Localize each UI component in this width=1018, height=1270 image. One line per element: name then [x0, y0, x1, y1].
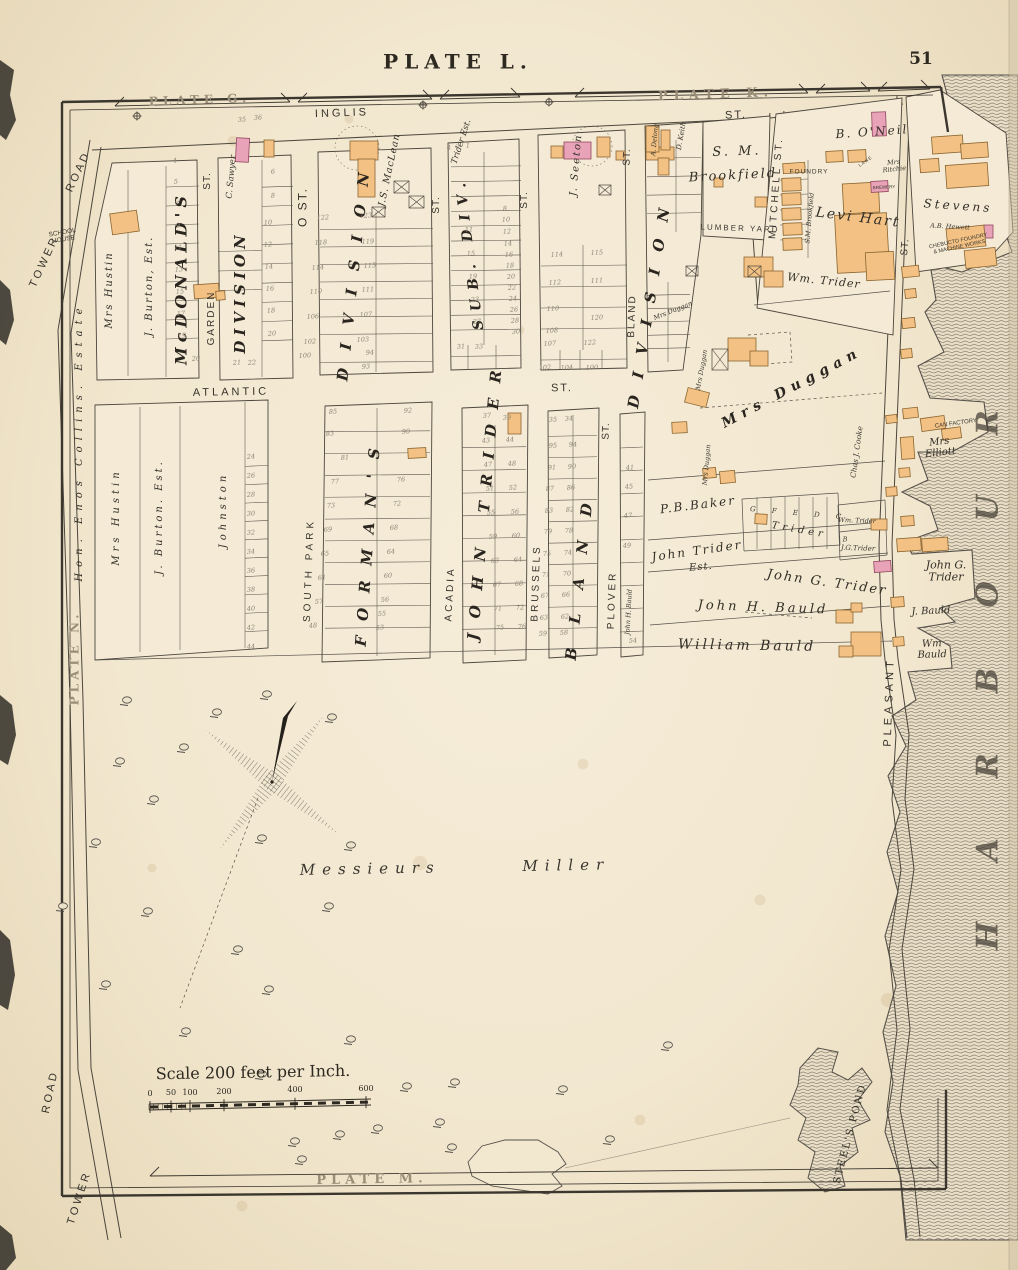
- plate-ref-k: PLATE K.: [658, 86, 775, 104]
- john-h-bauld: John H. Bauld: [697, 599, 828, 617]
- plate-ref-n: PLATE N.: [69, 611, 82, 706]
- parcel-number: 16: [505, 251, 514, 258]
- parcel-number: 42: [247, 624, 256, 631]
- parcel-number: 104: [561, 364, 574, 372]
- parcel-number: 51: [486, 485, 495, 492]
- parcel-number: 18: [267, 307, 276, 314]
- parcel-number: 53: [376, 624, 385, 631]
- scale-tick-200: 200: [216, 1088, 231, 1096]
- parcel-number: 41: [626, 464, 635, 471]
- garden-street-st: ST.: [203, 172, 214, 189]
- parcel-number: 95: [549, 442, 558, 449]
- sm-brookfield-2: Brookfield: [688, 167, 777, 185]
- c-sawyer: C. Sawyer: [226, 155, 239, 199]
- parcel-number: 8: [503, 205, 508, 212]
- parcel-number: 74: [564, 549, 573, 556]
- south-park-street: SOUTH PARK: [303, 518, 317, 623]
- parcel-number: 114: [312, 264, 325, 272]
- parcel-number: 102: [539, 364, 552, 372]
- parcel-number: 7: [175, 200, 180, 207]
- parcel-number: 63: [491, 557, 500, 564]
- steels-pond: STEEL'S POND: [833, 1083, 870, 1185]
- parcel-number: 39: [503, 414, 512, 421]
- parcel-number: 15: [467, 250, 476, 257]
- parcel-number: 22: [508, 284, 517, 291]
- parcel-number: 82: [566, 506, 575, 513]
- tower-road-upper-road: ROAD: [65, 150, 94, 195]
- st-label-1: ST.: [432, 196, 443, 213]
- parcel-number: 32: [247, 529, 256, 536]
- parcel-number: 75: [496, 624, 505, 631]
- parcel-number: 40: [247, 605, 256, 612]
- parcel-number: 24: [509, 295, 518, 302]
- parcel-number: 75: [543, 550, 552, 557]
- parcel-number: 61: [318, 574, 327, 581]
- parcel-number: 12: [264, 241, 273, 248]
- parcel-number: 30: [247, 510, 256, 517]
- parcel-number: 93: [362, 363, 371, 370]
- parcel-number: 107: [360, 311, 373, 319]
- parcel-number: 23: [471, 296, 480, 303]
- scale-caption: Scale 200 feet per Inch.: [156, 1063, 351, 1083]
- parcel-number: 37: [483, 412, 492, 419]
- parcel-number: 85: [329, 408, 338, 415]
- parcel-number: 120: [591, 314, 604, 322]
- parcel-number: 20: [507, 273, 516, 280]
- plate-ref-m: PLATE M.: [316, 1172, 428, 1188]
- parcel-number: 48: [309, 622, 318, 629]
- brewery: BREWERY: [873, 185, 896, 191]
- parcel-number: 48: [508, 460, 517, 467]
- inglis-street: INGLIS: [315, 107, 369, 120]
- parcel-number: 64: [387, 548, 396, 555]
- parcel-number: 70: [563, 570, 572, 577]
- parcel-number: 4: [173, 157, 178, 164]
- parcel-number: 60: [512, 532, 521, 539]
- parcel-number: 6: [271, 168, 276, 175]
- parcel-number: 90: [402, 428, 411, 435]
- parcel-number: 16: [266, 285, 275, 292]
- parcel-number: 31: [457, 343, 466, 350]
- parcel-number: 19: [178, 332, 187, 339]
- john-trider-division: JOHN TRIDER: [466, 355, 507, 641]
- parcel-number: 122: [317, 214, 330, 222]
- tower-road-lower-tower: TOWER: [66, 1170, 94, 1227]
- pleasant-street: PLEASANT: [883, 657, 898, 747]
- parcel-number: 94: [366, 349, 375, 356]
- parcel-number: 106: [307, 313, 320, 321]
- st-label-2: ST.: [520, 191, 531, 208]
- parcel-number: 10: [264, 219, 273, 226]
- parcel-number: 111: [591, 277, 604, 285]
- parcel-number: 64: [514, 556, 523, 563]
- parcel-number: 71: [494, 605, 503, 612]
- parcel-number: 44: [506, 436, 515, 443]
- parcel-number: 79: [544, 528, 553, 535]
- wm-trider-north: Wm. Trider: [787, 271, 861, 290]
- b-oneil: B. O'Neil: [835, 123, 909, 141]
- parcel-number: 55: [487, 509, 496, 516]
- o-street: O ST.: [297, 187, 310, 227]
- johnston: Johnston: [219, 472, 230, 549]
- bland-street-st: ST.: [622, 148, 633, 166]
- b-parcel: B: [843, 537, 848, 544]
- acadia-street: ACADIA: [444, 566, 457, 622]
- enos-collins-estate: Hon. Enos Collins. Estate: [75, 302, 86, 581]
- jg-trider-parcel: J.G.Trider: [841, 545, 876, 554]
- parcel-number: 55: [378, 610, 387, 617]
- william-bauld: William Bauld: [678, 637, 816, 654]
- mrs-duggan-v1: Mrs Duggan: [695, 349, 709, 391]
- parcel-number: 60: [384, 572, 393, 579]
- plover-street-st: ST.: [601, 422, 612, 440]
- parcel-number: 14: [265, 263, 274, 270]
- parcel-number: 8: [271, 192, 276, 199]
- sm-brookfield-1: S. M.: [712, 144, 762, 159]
- parcel-number: 112: [549, 279, 562, 287]
- parcel-number: 27: [473, 318, 482, 325]
- parcel-number: 2: [456, 143, 461, 150]
- inglis-street-st: ST.: [725, 110, 747, 122]
- trider-diagonal: Trider: [771, 521, 828, 541]
- scale-tick-50: 50: [166, 1089, 176, 1097]
- parcel-number: 33: [475, 343, 484, 350]
- parcel-number: 17: [177, 310, 186, 317]
- parcel-number: 115: [364, 262, 377, 270]
- parcel-number: 114: [551, 251, 564, 259]
- parcel-number: 67: [493, 581, 502, 588]
- parcel-number: 67: [541, 592, 550, 599]
- a-delong: A. Delong: [650, 124, 660, 157]
- d-keith: D. Keith: [676, 121, 688, 150]
- parcel-number: 76: [518, 623, 527, 630]
- parcel-number: 35: [238, 116, 247, 123]
- pleasant-street-st: ST.: [900, 238, 912, 256]
- parcel-number: 56: [381, 596, 390, 603]
- parcel-number: 91: [548, 464, 557, 471]
- parcel-number: 110: [547, 305, 560, 313]
- scale-tick-400: 400: [287, 1086, 302, 1094]
- parcel-number: 24: [247, 453, 256, 460]
- parcel-number: 26: [510, 306, 519, 313]
- school-house: SCHOOL HOUSE: [40, 226, 86, 247]
- parcel-number: 87: [546, 485, 555, 492]
- parcel-number: 68: [390, 524, 399, 531]
- parcel-number: 94: [569, 441, 578, 448]
- levi-hart: Levi Hart: [815, 206, 901, 231]
- parcel-number: 90: [568, 463, 577, 470]
- mrs-hustin-upper: Mrs Hustin: [105, 251, 116, 328]
- plover-street: PLOVER: [607, 571, 620, 630]
- j-seeton: J. Seeton: [569, 133, 585, 196]
- parcel-number: 108: [546, 327, 559, 335]
- map-labels-layer: PLATE L.51PLATE G.PLATE K.PLATE M.PLATE …: [0, 0, 1018, 1270]
- parcel-number: 119: [362, 238, 375, 246]
- scale-tick-100: 100: [182, 1089, 197, 1097]
- foundry: FOUNDRY: [789, 170, 828, 177]
- parcel-number: 14: [504, 240, 513, 247]
- js-maclean: J.S. MacLean: [377, 132, 402, 207]
- parcel-number: 77: [331, 478, 340, 485]
- mrs-duggan-large: Mrs Duggan: [719, 345, 864, 432]
- parcel-number: 44: [247, 643, 256, 650]
- parcel-number: 13: [175, 266, 184, 273]
- scale-tick-0: 0: [147, 1090, 152, 1098]
- mcdonalds-division-2: DIVISION: [233, 230, 249, 353]
- parcel-number: 36: [247, 567, 256, 574]
- mrs-elliott: Mrs Elliott: [917, 435, 963, 460]
- parcel-number: 47: [624, 512, 633, 519]
- garden-street: GARDEN: [207, 291, 218, 346]
- john-trider-est-2: Est.: [689, 562, 713, 575]
- stevens: Stevens: [923, 197, 993, 214]
- parcel-number: 71: [542, 571, 551, 578]
- parcel-number: 76: [397, 476, 406, 483]
- lane: LANE: [858, 156, 874, 169]
- parcel-number: 86: [567, 484, 576, 491]
- parcel-number: 118: [315, 239, 328, 247]
- parcel-number: 45: [625, 483, 634, 490]
- j-burton-upper: J. Burton, Est.: [145, 236, 156, 337]
- parcel-number: 10: [502, 216, 511, 223]
- parcel-number: 28: [511, 317, 520, 324]
- parcel-number: 18: [506, 262, 515, 269]
- parcel-number: 54: [629, 637, 638, 644]
- parcel-number: 111: [362, 286, 375, 294]
- lumber-yard: LUMBER YARD: [700, 223, 779, 234]
- parcel-number: 83: [545, 507, 554, 514]
- parcel-number: 56: [511, 508, 520, 515]
- parcel-number: 36: [254, 114, 263, 121]
- gfedc-letters: G F E D C: [750, 506, 849, 522]
- parcel-number: 1: [466, 142, 471, 149]
- parcel-number: 78: [565, 527, 574, 534]
- mrs-duggan-small: Mrs Duggan: [653, 300, 694, 322]
- j-bauld: J. Bauld: [911, 606, 950, 619]
- parcel-number: 52: [509, 484, 518, 491]
- john-g-trider: John G. Trider: [766, 568, 888, 598]
- parcel-number: 34: [247, 548, 256, 555]
- parcel-number: 58: [560, 629, 569, 636]
- plate-ref-g: PLATE G.: [149, 92, 252, 108]
- mrs-hustin-lower: Mrs Hustin: [112, 468, 123, 565]
- parcel-number: 123: [360, 212, 373, 220]
- parcel-number: 66: [562, 591, 571, 598]
- parcel-number: 11: [174, 244, 183, 251]
- parcel-number: 15: [176, 288, 185, 295]
- parcel-number: 12: [503, 228, 512, 235]
- parcel-number: 122: [584, 339, 597, 347]
- mrs-duggan-v2: Mrs Duggan: [702, 444, 712, 485]
- parcel-number: 65: [321, 550, 330, 557]
- parcel-number: 81: [341, 454, 350, 461]
- parcel-number: 83: [326, 430, 335, 437]
- messieurs-miller: Messieurs Miller: [300, 857, 611, 878]
- parcel-number: 103: [357, 336, 370, 344]
- parcel-number: 30: [512, 328, 521, 335]
- parcel-number: 100: [299, 352, 312, 360]
- john-g-trider-east: John G. Trider: [916, 559, 976, 582]
- parcel-number: 69: [324, 526, 333, 533]
- parcel-number: 59: [489, 533, 498, 540]
- atlas-page: PLATE L.51PLATE G.PLATE K.PLATE M.PLATE …: [0, 0, 1018, 1270]
- john-h-bauld-vertical: John H. Bauld: [624, 589, 633, 635]
- parcel-number: 5: [174, 178, 179, 185]
- parcel-number: 21: [233, 359, 242, 366]
- parcel-number: 100: [586, 364, 599, 372]
- parcel-number: 35: [549, 416, 558, 423]
- parcel-number: 38: [247, 586, 256, 593]
- parcel-number: 43: [482, 437, 491, 444]
- john-trider-est-1: John Trider: [651, 538, 743, 563]
- parcel-number: 59: [539, 630, 548, 637]
- parcel-number: 20: [268, 330, 277, 337]
- chebucto-works: CHEBUCTO FOUNDRY & MACHINE WORKS: [927, 233, 990, 257]
- parcel-number: 92: [404, 407, 413, 414]
- scale-tick-600: 600: [358, 1085, 373, 1093]
- parcel-number: 9: [176, 222, 181, 229]
- page-title: PLATE L.: [383, 52, 533, 73]
- trider-est: Trider Est.: [451, 119, 474, 166]
- parcel-number: 102: [304, 338, 317, 346]
- parcel-number: 62: [561, 613, 570, 620]
- harbour: HARBOUR: [972, 350, 1004, 950]
- atlantic-street-st: ST.: [551, 383, 573, 395]
- j-burton-lower: J. Burton. Est.: [155, 459, 166, 575]
- page-number: 51: [909, 51, 933, 69]
- parcel-number: 34: [565, 415, 574, 422]
- parcel-number: 68: [515, 580, 524, 587]
- mrs-ritchie: Mrs Ritchie: [875, 157, 912, 174]
- brussels-street: BRUSSELS: [530, 544, 543, 622]
- parcel-number: 73: [327, 502, 336, 509]
- pb-baker: P.B.Baker: [659, 494, 736, 516]
- parcel-number: 28: [247, 491, 256, 498]
- parcel-number: 26: [247, 472, 256, 479]
- tower-road-lower-road: ROAD: [41, 1069, 61, 1114]
- parcel-number: 57: [315, 598, 324, 605]
- parcel-number: 72: [393, 500, 402, 507]
- parcel-number: 47: [484, 461, 493, 468]
- parcel-number: 49: [623, 542, 632, 549]
- parcel-number: 63: [540, 614, 549, 621]
- parcel-number: 19: [469, 273, 478, 280]
- parcel-number: 20: [192, 355, 201, 362]
- atlantic-street: ATLANTIC: [193, 387, 270, 400]
- parcel-number: 107: [544, 340, 557, 348]
- ab-hewett: A.B. Hewett: [930, 223, 970, 232]
- parcel-number: 22: [248, 359, 257, 366]
- wm-trider-parcel: Wm. Trider: [838, 517, 876, 525]
- parcel-number: 110: [310, 288, 323, 296]
- chas-j-cooke: Chas J. Cooke: [849, 426, 864, 479]
- parcel-number: 11: [465, 226, 474, 233]
- parcel-number: 4: [447, 144, 452, 151]
- parcel-number: 72: [516, 604, 525, 611]
- parcel-number: 115: [591, 249, 604, 257]
- wm-bauld-east: Wm Bauld: [909, 639, 956, 662]
